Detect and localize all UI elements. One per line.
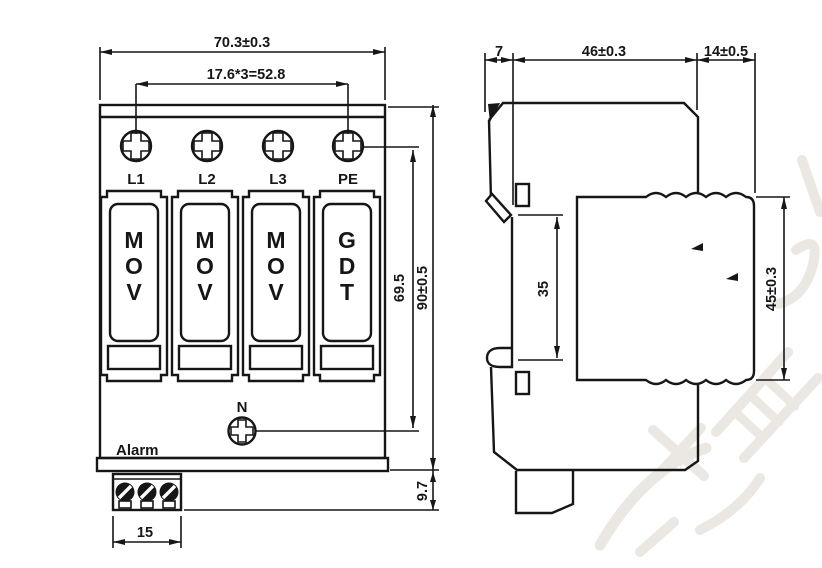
svg-text:M: M bbox=[124, 227, 143, 253]
side-plug-in-module bbox=[577, 193, 754, 384]
wire-entry bbox=[141, 501, 153, 508]
svg-text:D: D bbox=[339, 253, 356, 279]
svg-text:9.7: 9.7 bbox=[415, 481, 431, 501]
side-view: 7 46±0.3 14±0.5 35 45±0.3 bbox=[485, 44, 790, 513]
terminal-screw-icon bbox=[333, 131, 363, 161]
module-mov-1: M O V bbox=[101, 191, 167, 381]
svg-text:45±0.3: 45±0.3 bbox=[764, 267, 780, 311]
side-body-left-edge bbox=[489, 120, 491, 200]
side-slot-lower bbox=[516, 372, 529, 394]
dimension-module-pitch: 17.6*3=52.8 bbox=[136, 67, 348, 134]
watermark-stroke bbox=[700, 478, 760, 530]
dimension-din-rail-opening: 35 bbox=[518, 215, 563, 360]
svg-text:70.3±0.3: 70.3±0.3 bbox=[214, 35, 270, 51]
slotted-screw-icon bbox=[160, 483, 179, 502]
watermark-stroke bbox=[735, 412, 763, 438]
svg-text:90±0.5: 90±0.5 bbox=[415, 266, 431, 310]
svg-text:T: T bbox=[340, 279, 354, 305]
module-mov-2: M O V bbox=[172, 191, 238, 381]
svg-text:M: M bbox=[195, 227, 214, 253]
dimension-module-depth: 14±0.5 bbox=[704, 44, 748, 60]
side-alarm-block bbox=[516, 471, 573, 513]
dimension-depth-chain: 7 46±0.3 14±0.5 bbox=[485, 44, 755, 205]
din-rail-latch bbox=[486, 194, 511, 222]
svg-text:O: O bbox=[196, 253, 214, 279]
spd-outline-drawing: L1 L2 L3 PE M O V M O V M O V bbox=[0, 0, 822, 568]
watermark-stroke bbox=[640, 522, 674, 552]
side-top-clip-notch bbox=[488, 103, 500, 122]
technical-drawing-page: 份有限 bbox=[0, 0, 822, 568]
slotted-screw-icon bbox=[138, 483, 157, 502]
alarm-terminal-block bbox=[113, 474, 181, 510]
side-body-bottom bbox=[491, 367, 698, 470]
terminal-label-pe: PE bbox=[338, 171, 358, 188]
svg-text:V: V bbox=[197, 279, 213, 305]
status-indicator-window bbox=[321, 346, 373, 369]
svg-text:O: O bbox=[125, 253, 143, 279]
svg-text:17.6*3=52.8: 17.6*3=52.8 bbox=[207, 67, 286, 83]
svg-text:35: 35 bbox=[536, 281, 552, 297]
dimension-alarm-block-width: 15 bbox=[113, 516, 181, 548]
wire-entry bbox=[163, 501, 175, 508]
slotted-screw-icon bbox=[116, 483, 135, 502]
dimension-clip-offset: 7 bbox=[495, 44, 503, 60]
terminal-label-l2: L2 bbox=[198, 171, 216, 188]
svg-text:69.5: 69.5 bbox=[392, 274, 408, 302]
terminal-label-l3: L3 bbox=[269, 171, 287, 188]
neutral-screw-icon bbox=[229, 418, 256, 445]
watermark-stroke bbox=[767, 380, 795, 406]
terminal-screw-icon bbox=[121, 131, 151, 161]
svg-text:V: V bbox=[268, 279, 284, 305]
watermark-stroke bbox=[802, 160, 820, 212]
status-indicator-window bbox=[250, 346, 302, 369]
svg-text:M: M bbox=[266, 227, 285, 253]
front-base-strip bbox=[97, 458, 388, 471]
wire-entry bbox=[119, 501, 131, 508]
svg-text:G: G bbox=[338, 227, 356, 253]
svg-text:15: 15 bbox=[137, 525, 153, 541]
terminal-screw-icon bbox=[192, 131, 222, 161]
dimension-body-depth: 46±0.3 bbox=[582, 44, 626, 60]
terminal-screw-icon bbox=[263, 131, 293, 161]
status-indicator-window bbox=[108, 346, 160, 369]
terminal-label-l1: L1 bbox=[127, 171, 145, 188]
watermark-stroke bbox=[751, 396, 779, 422]
svg-text:O: O bbox=[267, 253, 285, 279]
neutral-label: N bbox=[237, 399, 248, 416]
side-slot-upper bbox=[516, 184, 529, 206]
alarm-label: Alarm bbox=[116, 442, 159, 459]
status-indicator-window bbox=[179, 346, 231, 369]
svg-text:V: V bbox=[126, 279, 142, 305]
din-rail-hook bbox=[487, 348, 512, 367]
module-mov-3: M O V bbox=[243, 191, 309, 381]
module-gdt: G D T bbox=[314, 191, 380, 381]
front-view: L1 L2 L3 PE M O V M O V M O V bbox=[97, 35, 439, 548]
dimension-base-height: 9.7 bbox=[184, 470, 439, 510]
